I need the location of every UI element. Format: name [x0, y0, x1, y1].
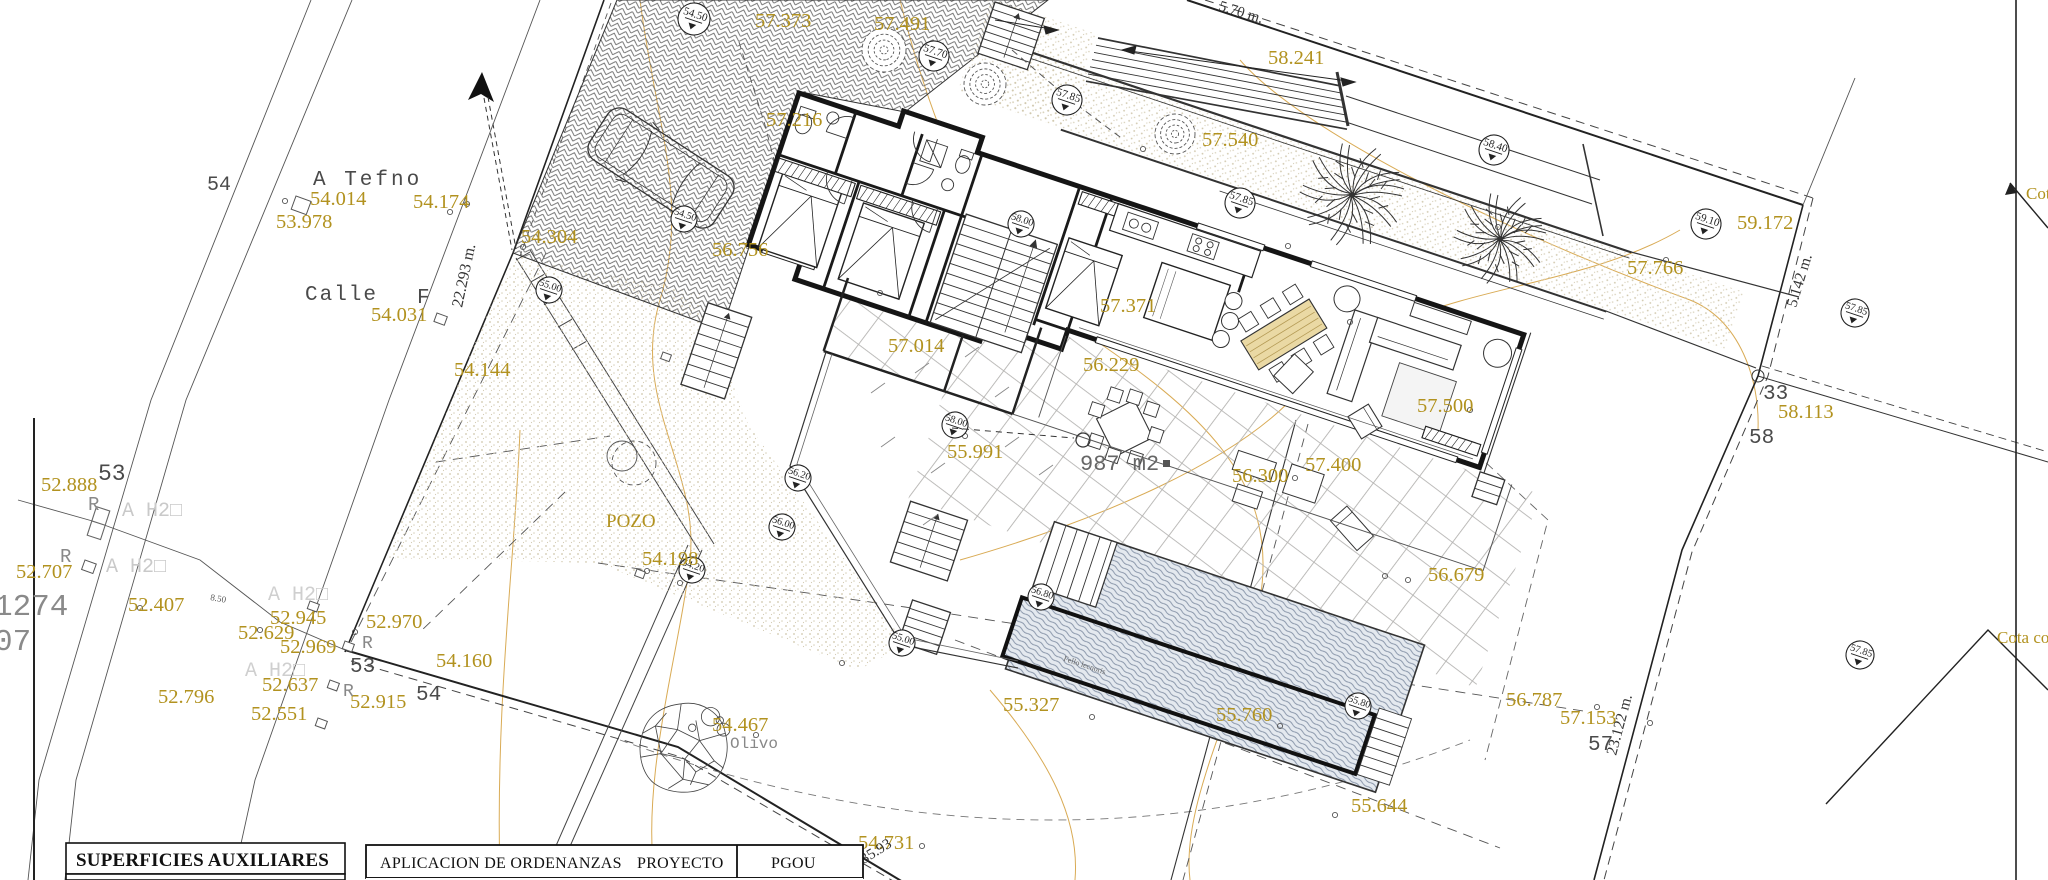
svg-text:55.991: 55.991: [947, 441, 1003, 463]
svg-text:57.153: 57.153: [1560, 707, 1616, 729]
svg-text:57.540: 57.540: [1202, 129, 1258, 151]
svg-text:A H2□: A H2□: [268, 584, 328, 607]
svg-text:57.014: 57.014: [888, 335, 944, 357]
svg-text:54.467: 54.467: [712, 714, 768, 736]
svg-text:57.373: 57.373: [755, 10, 811, 32]
svg-text:53: 53: [350, 656, 375, 679]
svg-text:52.796: 52.796: [158, 686, 214, 708]
svg-text:54: 54: [207, 174, 231, 197]
svg-text:52.970: 52.970: [366, 611, 422, 633]
svg-text:57.500: 57.500: [1417, 395, 1473, 417]
svg-text:54.304: 54.304: [521, 226, 577, 248]
svg-text:R: R: [60, 546, 71, 568]
svg-text:PROYECTO: PROYECTO: [637, 855, 724, 872]
svg-text:52.551: 52.551: [251, 703, 307, 725]
svg-text:56.679: 56.679: [1428, 564, 1484, 586]
svg-text:33: 33: [1763, 383, 1788, 406]
svg-text:1274: 1274: [0, 590, 68, 625]
svg-text:R: R: [343, 682, 354, 702]
svg-text:07: 07: [0, 625, 31, 660]
svg-text:Cota con: Cota con: [1997, 628, 2048, 647]
svg-text:57.766: 57.766: [1627, 257, 1683, 279]
svg-text:57.400: 57.400: [1305, 454, 1361, 476]
svg-text:52.407: 52.407: [128, 594, 184, 616]
svg-text:55.327: 55.327: [1003, 694, 1059, 716]
svg-text:Cota: Cota: [2026, 184, 2048, 203]
svg-text:58: 58: [1749, 427, 1774, 450]
svg-text:R: R: [88, 494, 99, 516]
svg-text:SUPERFICIES AUXILIARES: SUPERFICIES AUXILIARES: [76, 850, 329, 871]
svg-text:R: R: [362, 634, 373, 654]
svg-text:54.160: 54.160: [436, 650, 492, 672]
svg-text:A H2□: A H2□: [122, 500, 182, 523]
svg-text:56.756: 56.756: [712, 239, 768, 261]
svg-text:59.172: 59.172: [1737, 212, 1793, 234]
svg-text:56.787: 56.787: [1506, 689, 1562, 711]
svg-text:54.198: 54.198: [642, 548, 698, 570]
svg-text:57.371: 57.371: [1100, 295, 1156, 317]
svg-text:52.915: 52.915: [350, 691, 406, 713]
svg-text:57.491: 57.491: [874, 13, 930, 35]
svg-text:54.144: 54.144: [454, 359, 510, 381]
svg-text:56.229: 56.229: [1083, 354, 1139, 376]
svg-text:54.174: 54.174: [413, 191, 469, 213]
svg-text:Olivo: Olivo: [730, 735, 778, 753]
svg-text:55.644: 55.644: [1351, 795, 1407, 817]
svg-text:PGOU: PGOU: [771, 855, 816, 872]
svg-text:58.241: 58.241: [1268, 47, 1324, 69]
svg-text:54: 54: [416, 684, 441, 707]
svg-text:56.300: 56.300: [1232, 465, 1288, 487]
svg-text:Calle: Calle: [305, 284, 378, 307]
svg-text:987 m2: 987 m2: [1080, 452, 1159, 477]
svg-text:A H2□: A H2□: [106, 556, 166, 579]
svg-text:A H2□: A H2□: [245, 660, 305, 683]
svg-text:A Tefno: A Tefno: [313, 169, 422, 192]
svg-text:F: F: [417, 287, 430, 310]
svg-text:53: 53: [98, 461, 126, 487]
svg-text:57.216: 57.216: [766, 109, 822, 131]
svg-text:55.760: 55.760: [1216, 704, 1272, 726]
svg-text:POZO: POZO: [606, 511, 656, 532]
svg-text:52.969: 52.969: [280, 636, 336, 658]
svg-text:APLICACION DE ORDENANZAS: APLICACION DE ORDENANZAS: [380, 855, 622, 872]
svg-text:52.888: 52.888: [41, 474, 97, 496]
svg-text:53.978: 53.978: [276, 211, 332, 233]
